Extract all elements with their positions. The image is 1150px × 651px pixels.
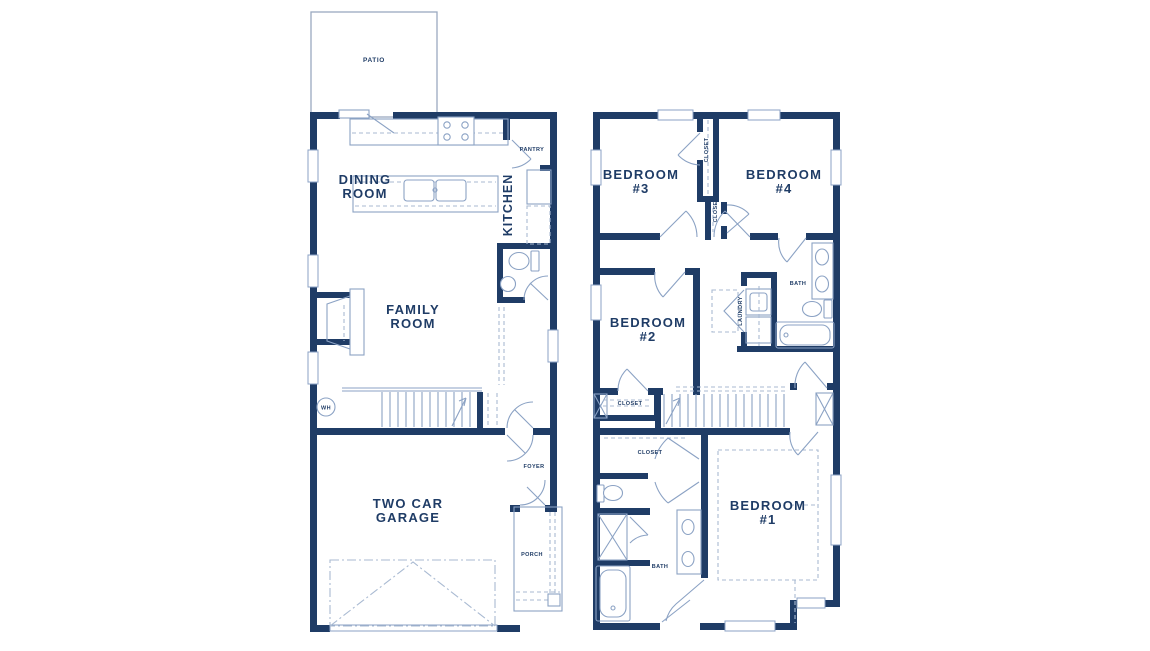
label-garage-1: TWO CAR (373, 496, 444, 511)
toilet-icon (824, 300, 832, 318)
label-bedroom4-1: BEDROOM (746, 167, 822, 182)
label-bath-lower: BATH (652, 564, 668, 570)
second-floor-plan: BEDROOM #3 BEDROOM #4 CLOSET CLOSET BATH… (591, 110, 841, 631)
sink-icon (816, 249, 829, 265)
label-bedroom2-1: BEDROOM (610, 315, 686, 330)
sink-icon (816, 276, 829, 292)
label-closet-walkin: CLOSET (638, 450, 663, 456)
label-patio: PATIO (363, 57, 385, 64)
label-bedroom4-2: #4 (776, 181, 793, 196)
label-porch: PORCH (521, 552, 543, 558)
kitchen-counter (350, 117, 508, 145)
floorplan-canvas: PATIO DINING ROOM KITCHEN PANTRY FAMILY … (0, 0, 1150, 651)
foyer-doors (507, 402, 545, 505)
powder-room (499, 251, 548, 385)
hall-doors (655, 211, 806, 297)
pantry-area (512, 140, 551, 244)
sink-icon (404, 180, 434, 201)
label-garage-2: GARAGE (376, 510, 440, 525)
toilet-icon (531, 251, 539, 271)
label-bedroom1-1: BEDROOM (730, 498, 806, 513)
label-dining-2: ROOM (342, 186, 387, 201)
label-bedroom3-1: BEDROOM (603, 167, 679, 182)
label-laundry: LAUNDRY (738, 296, 744, 325)
label-bedroom2-2: #2 (640, 329, 657, 344)
label-bath-upper: BATH (790, 281, 806, 287)
lower-bath-fixtures (596, 485, 701, 621)
porch-outline (514, 507, 562, 611)
label-kitchen: KITCHEN (501, 174, 515, 237)
floorplan-svg: PATIO DINING ROOM KITCHEN PANTRY FAMILY … (0, 0, 1150, 651)
sink-icon (501, 277, 516, 292)
label-bedroom1-2: #1 (760, 512, 777, 527)
stairs-second-floor (664, 387, 788, 427)
sink-icon (682, 520, 694, 535)
label-closet-bed2: CLOSET (618, 401, 643, 407)
toilet-icon (597, 485, 604, 502)
stove-icon (438, 117, 474, 145)
label-foyer: FOYER (524, 464, 545, 470)
patio-door (339, 110, 394, 133)
fireplace-icon (327, 289, 364, 355)
label-wh: WH (321, 406, 331, 412)
label-family-1: FAMILY (386, 302, 440, 317)
label-closet-bed3: CLOSET (704, 137, 710, 162)
first-floor-plan: PATIO DINING ROOM KITCHEN PANTRY FAMILY … (308, 12, 562, 632)
label-closet-bed4: CLOSET (713, 197, 719, 222)
second-floor-walls (593, 112, 840, 630)
sink-icon (682, 552, 694, 567)
label-pantry: PANTRY (520, 147, 544, 153)
fridge-icon (527, 170, 551, 204)
patio-outline (311, 12, 437, 117)
garage-door-marks (330, 560, 495, 626)
stairs-first-floor (342, 388, 497, 427)
porch-post (548, 594, 560, 606)
label-dining-1: DINING (339, 172, 392, 187)
label-family-2: ROOM (390, 316, 435, 331)
label-bedroom3-2: #3 (633, 181, 650, 196)
